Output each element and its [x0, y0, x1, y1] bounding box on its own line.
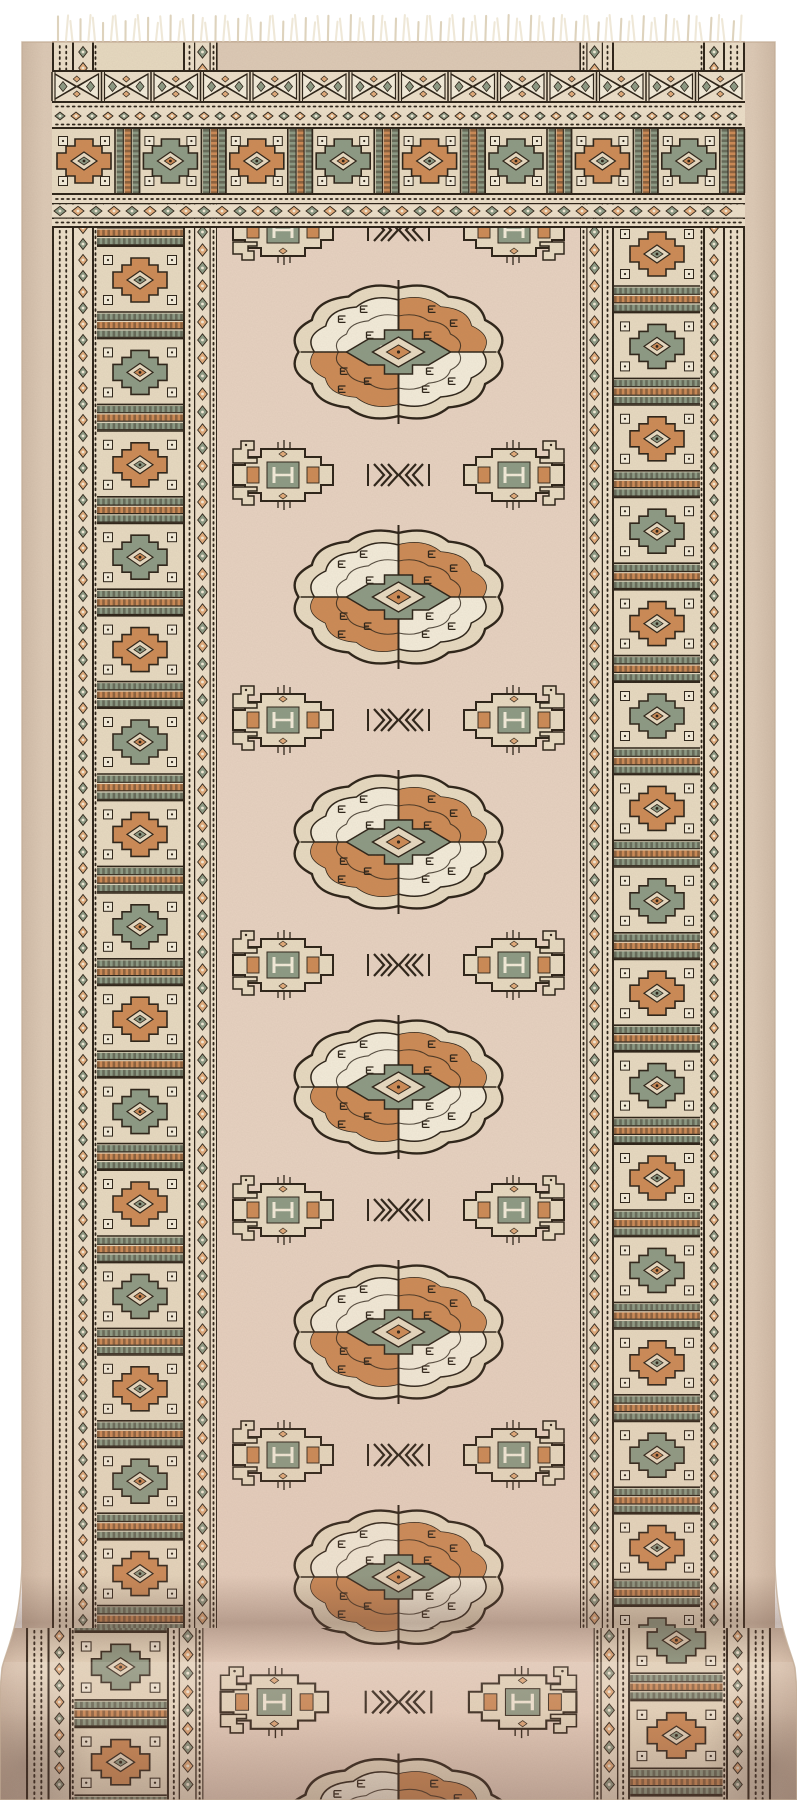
roll-crease-shadow: [0, 1575, 797, 1662]
rug-body: [0, 0, 797, 1800]
rug-photo: [0, 0, 797, 1800]
photo-canvas: [0, 0, 797, 1800]
roll-bottom-shadow: [0, 1712, 797, 1800]
